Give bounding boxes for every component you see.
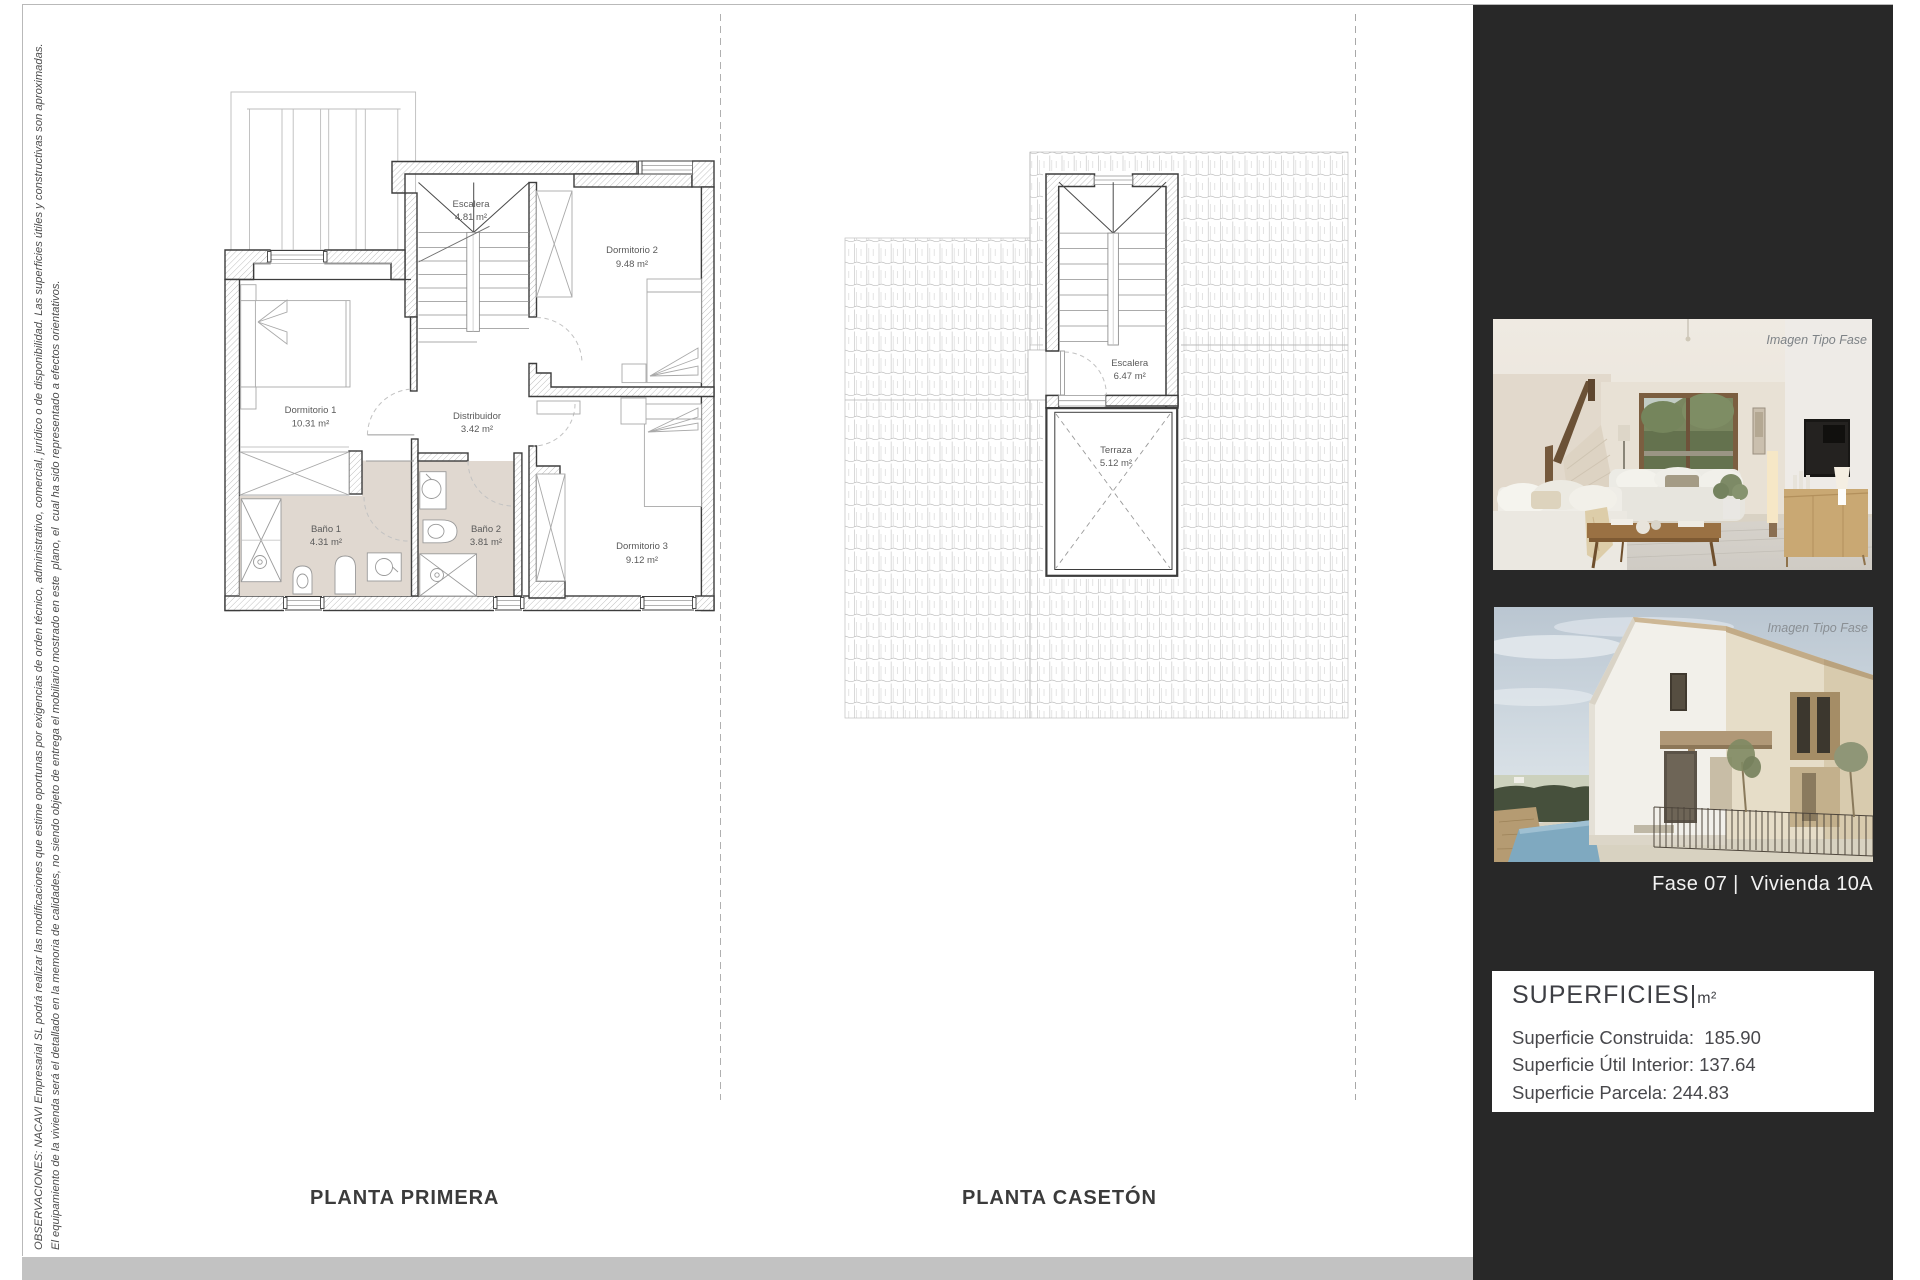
svg-text:4.31 m²: 4.31 m² <box>310 537 342 548</box>
svg-text:Escalera: Escalera <box>1111 358 1149 369</box>
svg-text:Terraza: Terraza <box>1100 445 1132 456</box>
svg-text:Distribuidor: Distribuidor <box>453 411 501 422</box>
svg-text:3.81 m²: 3.81 m² <box>470 537 502 548</box>
svg-text:Dormitorio 3: Dormitorio 3 <box>616 541 668 552</box>
svg-text:9.12 m²: 9.12 m² <box>626 555 658 566</box>
svg-text:Baño 1: Baño 1 <box>311 524 341 535</box>
svg-text:Dormitorio 2: Dormitorio 2 <box>606 245 658 256</box>
svg-text:6.47 m²: 6.47 m² <box>1114 371 1146 382</box>
svg-text:Escalera: Escalera <box>453 199 491 210</box>
svg-text:Dormitorio 1: Dormitorio 1 <box>285 405 337 416</box>
svg-text:Imagen Tipo Fase: Imagen Tipo Fase <box>1766 333 1867 347</box>
svg-text:Baño 2: Baño 2 <box>471 524 501 535</box>
svg-text:4.81 m²: 4.81 m² <box>455 212 487 223</box>
svg-text:10.31 m²: 10.31 m² <box>292 419 330 430</box>
svg-text:Imagen Tipo Fase: Imagen Tipo Fase <box>1767 621 1868 635</box>
svg-text:3.42 m²: 3.42 m² <box>461 424 493 435</box>
svg-text:5.12 m²: 5.12 m² <box>1100 458 1132 469</box>
svg-text:9.48 m²: 9.48 m² <box>616 259 648 270</box>
